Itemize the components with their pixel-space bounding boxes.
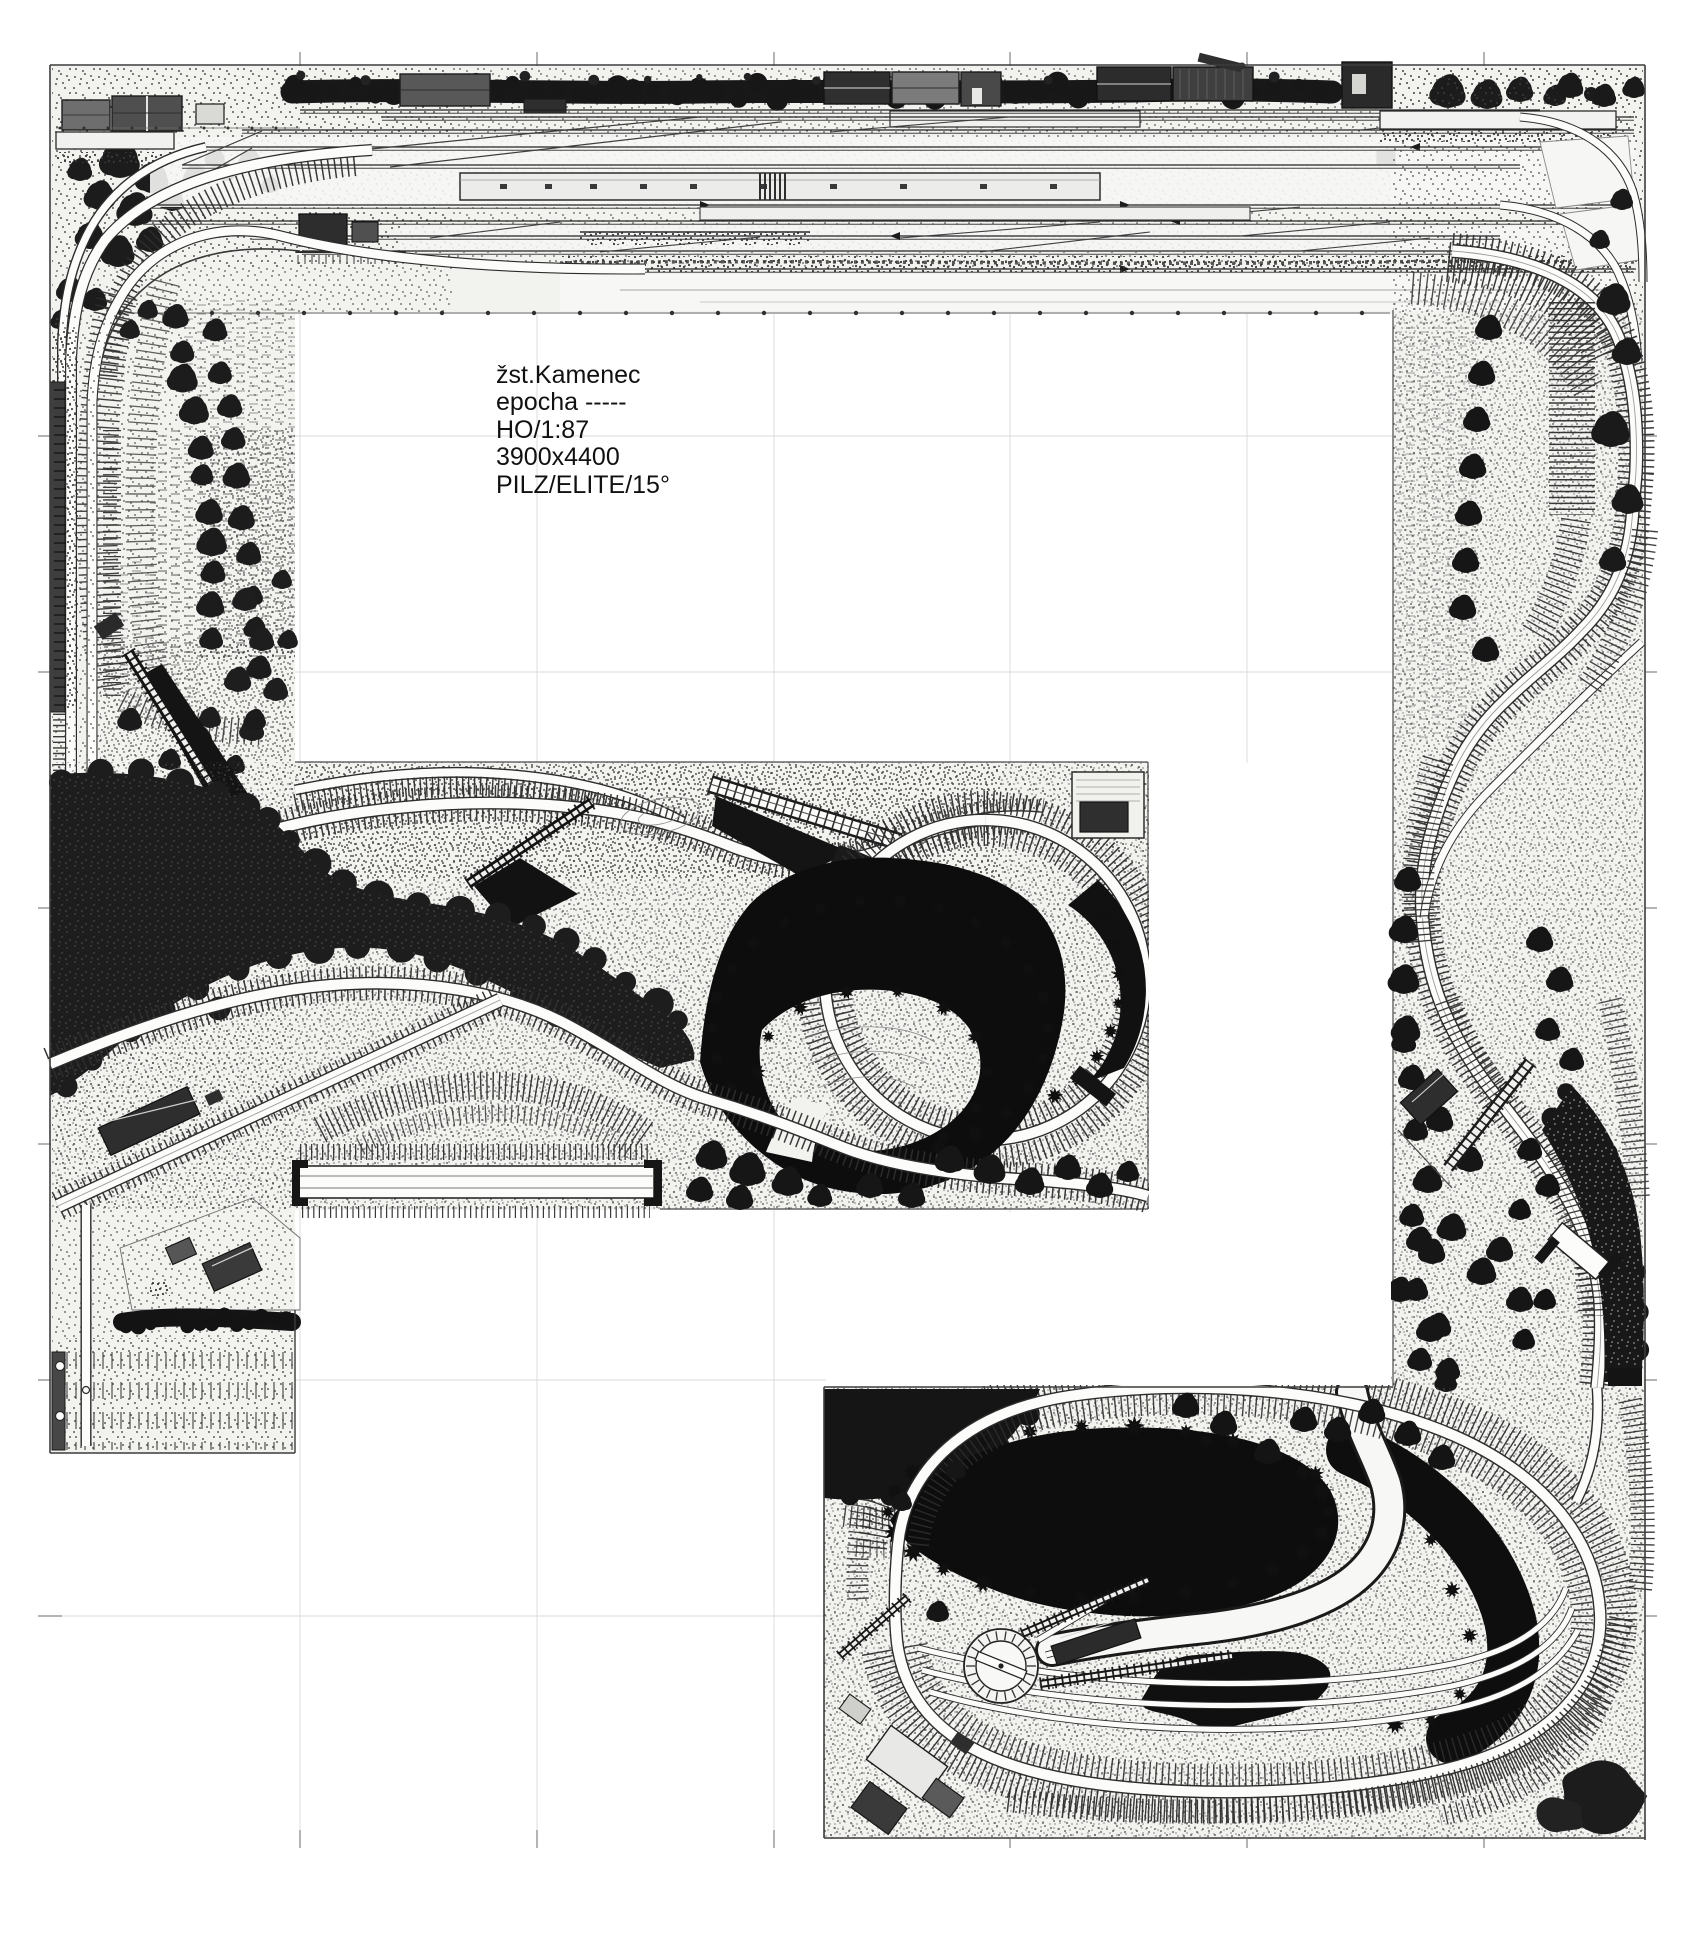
- svg-text:HO/1:87: HO/1:87: [496, 416, 589, 444]
- svg-text:žst.Kamenec: žst.Kamenec: [496, 361, 641, 389]
- svg-text:PILZ/ELITE/15°: PILZ/ELITE/15°: [496, 471, 670, 499]
- svg-text:epocha -----: epocha -----: [496, 388, 627, 416]
- svg-text:3900x4400: 3900x4400: [496, 443, 620, 471]
